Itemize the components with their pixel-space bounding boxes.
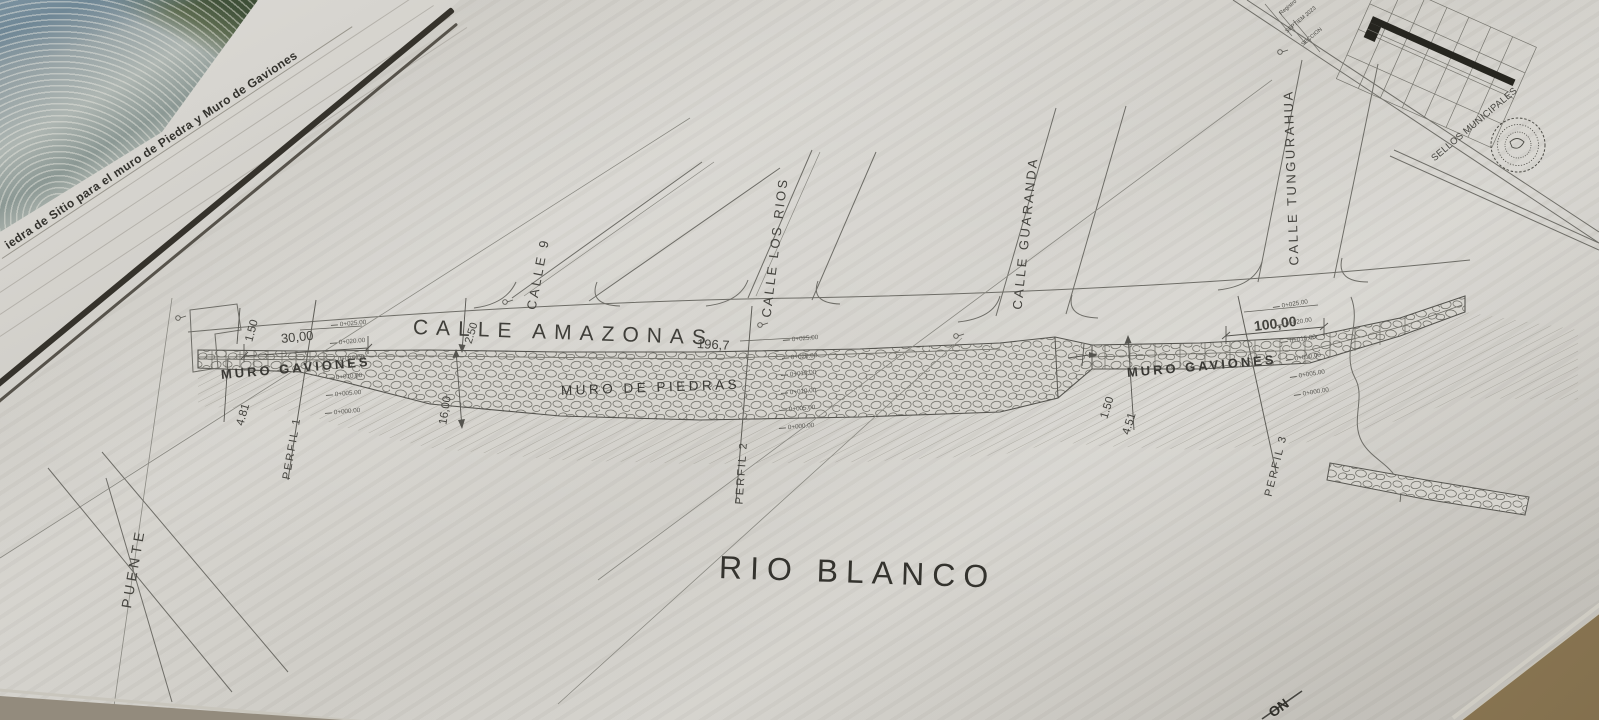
main-street-label: CALLE AMAZONAS — [413, 317, 715, 348]
annotation-layer: iedra de Sitio para el muro de Piedra y … — [0, 0, 1599, 720]
stations-perfil-3-mark: 0+000.00 — [1294, 387, 1330, 399]
seal-strip-title: SELLOS MUNICIPALES — [1430, 86, 1519, 163]
stations-perfil-2-mark: 0+025.00 — [783, 335, 819, 344]
river-label: RIO BLANCO — [718, 551, 996, 593]
profile-label-perfil-3: PERFIL 3 — [1264, 434, 1290, 498]
stations-perfil-3-mark: 0+015.00 — [1281, 335, 1317, 347]
stations-perfil-2-mark: 0+010.00 — [780, 388, 816, 397]
stations-perfil-1-mark: 0+020.00 — [330, 338, 366, 347]
stations-perfil-2-mark: 0+015.00 — [781, 370, 817, 379]
wall-label-muro-gaviones-right: MURO GAVIONES — [1126, 353, 1277, 379]
wall-label-muro-de-piedras: MURO DE PIEDRAS — [561, 378, 741, 398]
dim-30-00: 30,00 — [280, 329, 314, 345]
street-label-calle-los-rios: CALLE LOS RIOS — [760, 177, 790, 319]
dim-right-1-50: 1.50 — [1100, 396, 1118, 421]
stations-perfil-1-mark: 0+000.00 — [325, 408, 361, 417]
profile-label-perfil-2: PERFIL 2 — [735, 441, 750, 505]
bridge-label: PUENTE — [119, 527, 147, 609]
main-street-length: 196,7 — [697, 337, 730, 352]
street-label-calle-tungurahua: CALLE TUNGURAHUA — [1281, 89, 1300, 266]
corner-text-fragment: ON — [1266, 696, 1291, 720]
titleblock-seccion: SECCION — [1301, 28, 1324, 48]
profile-label-perfil-1: PERFIL 1 — [282, 416, 304, 480]
stations-perfil-1-mark: 0+010.00 — [327, 373, 363, 382]
stations-perfil-3-mark: 0+010.00 — [1285, 352, 1321, 364]
photo-caption: iedra de Sitio para el muro de Piedra y … — [3, 49, 300, 251]
photo-of-plan-sheets: iedra de Sitio para el muro de Piedra y … — [0, 0, 1599, 720]
stations-perfil-3-mark: 0+005.00 — [1289, 370, 1325, 382]
dim-4-51: 4.51 — [1122, 412, 1140, 437]
stations-perfil-3-mark: 0+025.00 — [1273, 299, 1309, 311]
stations-perfil-1-mark: 0+025.00 — [331, 320, 367, 329]
dim-4-81: 4.81 — [235, 403, 252, 428]
stations-perfil-2-mark: 0+020.00 — [782, 353, 818, 362]
dim-16-00: 16,00 — [438, 395, 454, 425]
stations-perfil-2-mark: 0+000.00 — [779, 423, 815, 432]
street-label-calle-guaranda: CALLE GUARANDA — [1011, 156, 1040, 310]
stations-perfil-1-mark: 0+005.00 — [326, 390, 362, 399]
street-label-calle-9: CALLE 9 — [525, 237, 552, 311]
dim-left-1-50: 1.50 — [244, 319, 261, 344]
titleblock-registro: Registro — [1279, 0, 1298, 17]
stations-perfil-2-mark: 0+005.00 — [780, 405, 816, 414]
